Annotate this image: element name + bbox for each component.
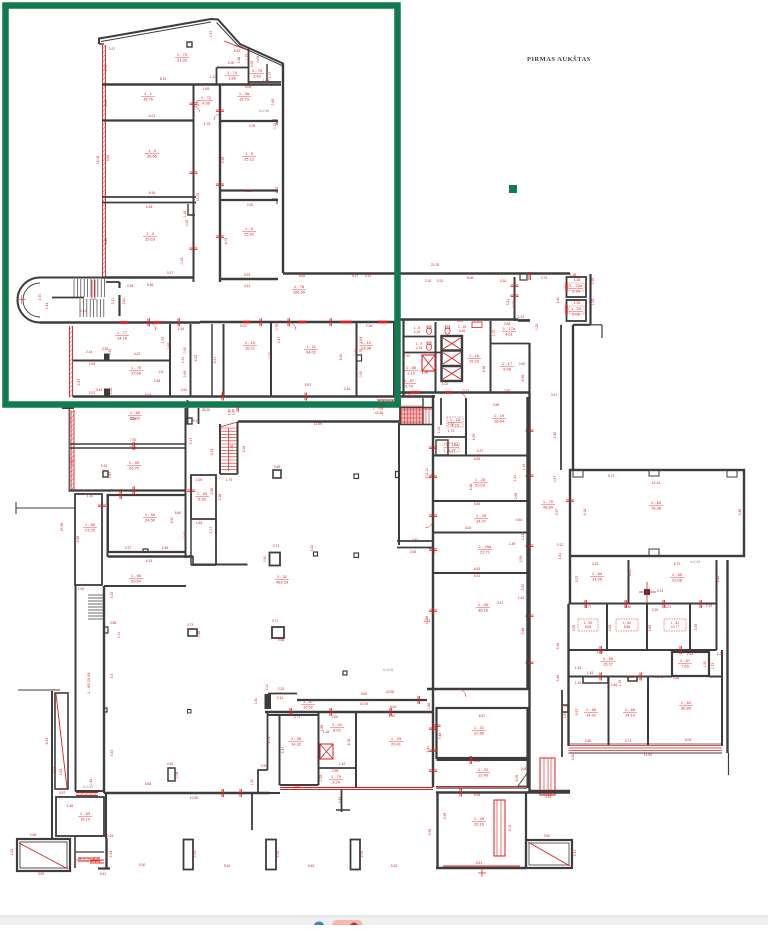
svg-text:0.66: 0.66 xyxy=(278,638,285,642)
svg-text:2.33: 2.33 xyxy=(278,687,285,691)
svg-text:1 - 76a: 1 - 76a xyxy=(373,407,384,411)
svg-text:5.42: 5.42 xyxy=(389,714,396,718)
svg-text:25.12: 25.12 xyxy=(244,156,255,161)
svg-text:1 - 2: 1 - 2 xyxy=(148,148,157,153)
svg-text:3.43: 3.43 xyxy=(338,797,342,804)
svg-text:2.47: 2.47 xyxy=(77,379,81,386)
svg-text:1.48: 1.48 xyxy=(67,804,74,808)
svg-text:3.93: 3.93 xyxy=(244,273,251,277)
svg-text:0.72: 0.72 xyxy=(273,544,280,548)
svg-text:1 - 18a: 1 - 18a xyxy=(446,442,459,447)
svg-text:0.25: 0.25 xyxy=(107,834,114,838)
svg-text:5.06: 5.06 xyxy=(467,276,474,280)
svg-text:1 - 23: 1 - 23 xyxy=(571,306,582,311)
svg-text:2.8: 2.8 xyxy=(159,370,164,374)
svg-text:2.46: 2.46 xyxy=(611,683,618,687)
svg-text:4.03: 4.03 xyxy=(224,238,228,245)
svg-text:11.11: 11.11 xyxy=(425,468,429,476)
svg-text:6.55: 6.55 xyxy=(109,388,113,395)
svg-text:2.73: 2.73 xyxy=(541,276,548,280)
svg-text:1 - 5: 1 - 5 xyxy=(245,151,254,156)
svg-text:0.61: 0.61 xyxy=(100,872,107,876)
svg-text:23.25: 23.25 xyxy=(85,527,96,532)
svg-text:27.66: 27.66 xyxy=(131,370,142,375)
svg-text:2.80: 2.80 xyxy=(625,605,632,609)
svg-text:2.03: 2.03 xyxy=(75,858,82,862)
svg-text:4.28: 4.28 xyxy=(469,484,473,491)
svg-text:98.84: 98.84 xyxy=(543,504,554,509)
svg-text:6.21: 6.21 xyxy=(213,357,217,364)
svg-text:4.05: 4.05 xyxy=(245,85,252,89)
svg-text:2.37: 2.37 xyxy=(125,546,132,550)
svg-text:6.18: 6.18 xyxy=(583,509,587,516)
svg-text:4.56: 4.56 xyxy=(202,100,211,105)
svg-text:4.37: 4.37 xyxy=(477,449,484,453)
svg-text:1.79: 1.79 xyxy=(618,680,622,687)
svg-text:4.18: 4.18 xyxy=(242,446,246,453)
svg-text:9.79: 9.79 xyxy=(405,383,414,388)
svg-text:5.41: 5.41 xyxy=(476,861,483,865)
svg-text:3.29: 3.29 xyxy=(59,769,63,776)
svg-text:78.38: 78.38 xyxy=(651,505,662,510)
svg-text:1.29: 1.29 xyxy=(319,775,323,782)
svg-text:1.79: 1.79 xyxy=(226,478,233,482)
svg-text:3.46: 3.46 xyxy=(459,329,465,333)
svg-text:7.65: 7.65 xyxy=(681,663,690,668)
svg-text:0.15: 0.15 xyxy=(273,123,277,130)
svg-text:h=3.05: h=3.05 xyxy=(383,668,394,672)
svg-text:2.48: 2.48 xyxy=(162,546,169,550)
svg-text:3.01: 3.01 xyxy=(240,324,247,328)
svg-text:0.18: 0.18 xyxy=(127,284,134,288)
svg-text:29.64: 29.64 xyxy=(131,578,142,583)
svg-text:16.76: 16.76 xyxy=(143,96,154,101)
svg-text:0.30: 0.30 xyxy=(268,352,272,359)
svg-text:2.87: 2.87 xyxy=(448,447,457,452)
svg-text:0.27: 0.27 xyxy=(167,271,174,275)
svg-text:2.41: 2.41 xyxy=(573,850,577,857)
svg-text:16.21: 16.21 xyxy=(245,345,256,350)
svg-text:2.59: 2.59 xyxy=(519,556,523,563)
svg-text:1 - 64: 1 - 64 xyxy=(592,571,603,576)
svg-text:5.46: 5.46 xyxy=(556,675,560,682)
svg-text:2.44: 2.44 xyxy=(344,387,351,391)
svg-text:2.65: 2.65 xyxy=(271,99,275,106)
svg-text:3.10: 3.10 xyxy=(405,393,412,397)
svg-text:5.09: 5.09 xyxy=(685,738,692,742)
svg-text:1 - 30: 1 - 30 xyxy=(478,602,489,607)
svg-text:4.50: 4.50 xyxy=(170,517,174,524)
svg-text:1.45: 1.45 xyxy=(587,671,594,675)
svg-text:5.57: 5.57 xyxy=(575,709,579,716)
svg-text:1 - 17: 1 - 17 xyxy=(502,361,513,366)
svg-text:3.37: 3.37 xyxy=(53,767,57,774)
svg-text:4.30: 4.30 xyxy=(339,354,343,361)
svg-text:1 - 22a: 1 - 22a xyxy=(570,283,583,288)
svg-text:6.60: 6.60 xyxy=(175,511,182,515)
svg-text:43.56: 43.56 xyxy=(386,690,395,694)
svg-text:1 - 65: 1 - 65 xyxy=(672,572,683,577)
svg-text:1.33: 1.33 xyxy=(591,299,595,306)
svg-text:1.69: 1.69 xyxy=(196,478,203,482)
svg-text:4.11: 4.11 xyxy=(244,284,250,288)
svg-text:0.58: 0.58 xyxy=(110,621,117,625)
svg-text:463.33: 463.33 xyxy=(276,579,289,584)
svg-text:6.21: 6.21 xyxy=(149,114,156,118)
svg-text:2.33: 2.33 xyxy=(193,851,197,858)
svg-text:43.56: 43.56 xyxy=(424,407,433,411)
svg-text:6.70: 6.70 xyxy=(674,562,681,566)
svg-text:5.46: 5.46 xyxy=(104,238,108,245)
svg-text:8.10: 8.10 xyxy=(160,77,167,81)
svg-text:1.08: 1.08 xyxy=(175,772,179,779)
svg-text:0.12: 0.12 xyxy=(557,543,564,547)
svg-text:1.92: 1.92 xyxy=(87,494,94,498)
svg-text:2.73: 2.73 xyxy=(104,65,108,72)
svg-text:1.99: 1.99 xyxy=(422,371,429,375)
svg-text:1.90: 1.90 xyxy=(78,587,85,591)
svg-text:1.32: 1.32 xyxy=(432,548,436,555)
svg-text:3.17: 3.17 xyxy=(209,527,213,534)
svg-text:14.42: 14.42 xyxy=(586,712,597,717)
svg-text:3.40: 3.40 xyxy=(70,459,74,466)
svg-text:3.92: 3.92 xyxy=(38,872,45,876)
svg-text:3.26: 3.26 xyxy=(457,319,464,323)
svg-text:2.60: 2.60 xyxy=(332,715,339,719)
svg-text:36.89: 36.89 xyxy=(681,705,692,710)
svg-text:1.02: 1.02 xyxy=(437,427,441,434)
svg-text:6.63: 6.63 xyxy=(474,567,481,571)
svg-text:1.38: 1.38 xyxy=(574,278,581,282)
svg-text:2.80: 2.80 xyxy=(585,739,592,743)
svg-text:0.25: 0.25 xyxy=(185,220,189,227)
svg-text:2.55: 2.55 xyxy=(30,833,37,837)
svg-text:2.64: 2.64 xyxy=(504,322,511,326)
svg-text:166.90: 166.90 xyxy=(293,289,306,294)
svg-text:3.42: 3.42 xyxy=(253,73,262,78)
svg-text:9.82: 9.82 xyxy=(361,692,368,696)
svg-text:1 - 78: 1 - 78 xyxy=(131,365,142,370)
svg-text:0.48: 0.48 xyxy=(197,631,201,638)
svg-text:1 - 72: 1 - 72 xyxy=(201,95,212,100)
svg-text:2.81: 2.81 xyxy=(122,298,126,305)
svg-text:1 - 74: 1 - 74 xyxy=(227,70,238,75)
svg-text:4.22: 4.22 xyxy=(134,352,141,356)
svg-text:3.21: 3.21 xyxy=(506,299,510,306)
svg-text:1.75: 1.75 xyxy=(204,122,211,126)
svg-text:10.77: 10.77 xyxy=(671,625,679,629)
svg-text:1.50: 1.50 xyxy=(563,712,567,719)
svg-text:5.92: 5.92 xyxy=(556,643,560,650)
svg-text:5.93: 5.93 xyxy=(428,829,432,836)
svg-text:1 - 11: 1 - 11 xyxy=(306,344,317,349)
svg-text:5.48: 5.48 xyxy=(521,628,525,635)
svg-text:5.41: 5.41 xyxy=(426,746,430,753)
svg-text:22.71: 22.71 xyxy=(480,549,491,554)
svg-text:0.42: 0.42 xyxy=(89,779,93,786)
svg-text:2.77: 2.77 xyxy=(585,605,592,609)
svg-text:2.14: 2.14 xyxy=(706,604,713,608)
svg-text:6.22: 6.22 xyxy=(194,355,198,362)
svg-text:1 - 77: 1 - 77 xyxy=(117,330,128,335)
svg-text:2.69: 2.69 xyxy=(514,493,518,500)
svg-text:2.66: 2.66 xyxy=(504,389,511,393)
svg-text:1.57: 1.57 xyxy=(209,31,213,38)
svg-text:1.18: 1.18 xyxy=(597,650,604,654)
svg-text:5.57: 5.57 xyxy=(555,509,559,516)
svg-text:2.73: 2.73 xyxy=(161,337,165,344)
svg-text:36.16: 36.16 xyxy=(478,607,489,612)
svg-text:0.69: 0.69 xyxy=(274,465,281,469)
svg-text:1 - 16: 1 - 16 xyxy=(469,353,480,358)
svg-text:3.22: 3.22 xyxy=(512,301,516,308)
svg-text:1.42: 1.42 xyxy=(518,596,525,600)
svg-text:3.55: 3.55 xyxy=(694,624,698,631)
svg-text:2.33: 2.33 xyxy=(360,851,364,858)
svg-text:0.33: 0.33 xyxy=(101,464,108,468)
svg-text:2.33: 2.33 xyxy=(276,851,280,858)
svg-text:6.57: 6.57 xyxy=(479,714,486,718)
svg-text:6.89: 6.89 xyxy=(76,536,80,543)
svg-text:1 - 55: 1 - 55 xyxy=(129,460,140,465)
svg-text:1.38: 1.38 xyxy=(570,273,577,277)
svg-text:12.19: 12.19 xyxy=(196,193,200,202)
svg-text:2.69: 2.69 xyxy=(104,100,108,107)
svg-text:15.33: 15.33 xyxy=(469,358,480,363)
svg-text:2.15: 2.15 xyxy=(416,346,422,350)
svg-text:5.68: 5.68 xyxy=(145,782,152,786)
svg-text:1.48: 1.48 xyxy=(230,445,234,452)
svg-text:1.69: 1.69 xyxy=(203,87,210,91)
svg-text:3.32: 3.32 xyxy=(310,545,314,552)
svg-text:24.50: 24.50 xyxy=(145,517,156,522)
svg-text:5.33: 5.33 xyxy=(198,496,207,501)
svg-text:0.31: 0.31 xyxy=(365,274,372,278)
svg-text:1.01: 1.01 xyxy=(117,632,121,639)
svg-text:25.63: 25.63 xyxy=(145,236,156,241)
svg-text:2.16: 2.16 xyxy=(414,330,420,334)
svg-text:0.15: 0.15 xyxy=(180,258,184,265)
svg-text:3.53: 3.53 xyxy=(608,625,612,632)
svg-text:1 - 70: 1 - 70 xyxy=(543,499,554,504)
svg-text:2.61: 2.61 xyxy=(181,388,188,392)
svg-text:15.27: 15.27 xyxy=(603,661,614,666)
svg-text:0.90: 0.90 xyxy=(263,556,267,563)
svg-text:1 - 31: 1 - 31 xyxy=(474,725,485,730)
svg-text:1.72: 1.72 xyxy=(492,330,496,337)
svg-text:3.27: 3.27 xyxy=(575,576,579,583)
svg-text:4.29: 4.29 xyxy=(472,434,476,441)
svg-text:1 - 54: 1 - 54 xyxy=(145,512,156,517)
svg-text:0.73: 0.73 xyxy=(187,623,194,627)
svg-text:1.50: 1.50 xyxy=(250,779,254,786)
svg-text:0.27: 0.27 xyxy=(109,47,116,51)
svg-text:3.10: 3.10 xyxy=(545,795,552,799)
svg-text:0.44: 0.44 xyxy=(96,388,103,392)
svg-text:0.33: 0.33 xyxy=(424,619,431,623)
svg-text:3.16: 3.16 xyxy=(500,279,507,283)
svg-text:0.47: 0.47 xyxy=(497,601,504,605)
svg-text:28.20: 28.20 xyxy=(202,408,211,412)
svg-text:5.30: 5.30 xyxy=(139,863,146,867)
svg-text:5.53: 5.53 xyxy=(110,750,114,757)
svg-text:1.73: 1.73 xyxy=(711,663,715,670)
svg-text:1 - 28: 1 - 28 xyxy=(475,477,486,482)
svg-text:2.64: 2.64 xyxy=(359,337,363,344)
svg-text:0.25: 0.25 xyxy=(535,324,539,331)
svg-text:1.39: 1.39 xyxy=(574,301,581,305)
svg-text:5.48: 5.48 xyxy=(738,509,742,516)
svg-text:2.10: 2.10 xyxy=(404,354,411,358)
svg-text:0.31: 0.31 xyxy=(437,279,444,283)
svg-text:1.91: 1.91 xyxy=(431,511,435,518)
svg-text:12.31: 12.31 xyxy=(652,481,661,485)
svg-text:2.71: 2.71 xyxy=(625,739,632,743)
svg-text:1.44: 1.44 xyxy=(45,303,49,310)
svg-text:2.69: 2.69 xyxy=(183,371,187,378)
svg-text:0.30: 0.30 xyxy=(247,203,254,207)
svg-text:6.95: 6.95 xyxy=(515,775,519,782)
svg-text:7.48: 7.48 xyxy=(438,733,442,740)
svg-text:4.58: 4.58 xyxy=(482,366,486,373)
svg-text:0.71: 0.71 xyxy=(272,619,279,623)
svg-text:1.18: 1.18 xyxy=(323,730,330,734)
svg-text:1.10: 1.10 xyxy=(265,684,269,691)
svg-text:3.21: 3.21 xyxy=(463,389,470,393)
svg-text:2.42: 2.42 xyxy=(183,532,187,539)
svg-text:1.02: 1.02 xyxy=(442,382,449,386)
svg-text:1 - 52: 1 - 52 xyxy=(277,574,288,579)
svg-text:1.31: 1.31 xyxy=(181,357,185,364)
svg-text:1 - 3: 1 - 3 xyxy=(146,231,155,236)
svg-text:3.50: 3.50 xyxy=(544,834,551,838)
svg-text:0.15: 0.15 xyxy=(561,704,568,708)
svg-text:2.71: 2.71 xyxy=(294,715,301,719)
svg-text:1.28: 1.28 xyxy=(717,652,724,656)
svg-text:1 - 3a: 1 - 3a xyxy=(239,91,250,96)
svg-text:3.74: 3.74 xyxy=(210,449,214,456)
svg-text:5.32: 5.32 xyxy=(391,864,398,868)
svg-text:1.15: 1.15 xyxy=(575,681,582,685)
svg-text:3.96: 3.96 xyxy=(245,189,252,193)
svg-text:1.12: 1.12 xyxy=(518,315,525,319)
svg-text:7.90: 7.90 xyxy=(130,446,137,450)
svg-text:2.00: 2.00 xyxy=(228,61,235,65)
svg-text:1 - 60: 1 - 60 xyxy=(131,573,142,578)
svg-text:1.64: 1.64 xyxy=(178,327,185,331)
svg-text:3.20: 3.20 xyxy=(571,754,575,761)
svg-text:0.97: 0.97 xyxy=(59,791,66,795)
svg-text:5.17: 5.17 xyxy=(189,438,193,445)
svg-text:5.36: 5.36 xyxy=(147,283,154,287)
svg-text:1 - 87: 1 - 87 xyxy=(404,378,415,383)
svg-text:16.73: 16.73 xyxy=(239,96,250,101)
svg-text:1.17: 1.17 xyxy=(268,72,272,79)
svg-text:0.56: 0.56 xyxy=(493,403,500,407)
svg-text:h=2.45: h=2.45 xyxy=(690,560,701,564)
svg-text:9.15: 9.15 xyxy=(193,419,200,423)
svg-text:10.09: 10.09 xyxy=(360,702,369,706)
svg-text:0.25: 0.25 xyxy=(652,608,659,612)
svg-text:1.18: 1.18 xyxy=(183,211,187,218)
svg-text:2.10: 2.10 xyxy=(425,279,432,283)
svg-text:1.13: 1.13 xyxy=(521,534,525,541)
svg-text:1 - 79: 1 - 79 xyxy=(331,774,342,779)
svg-text:5.45: 5.45 xyxy=(553,432,557,439)
svg-text:5.66: 5.66 xyxy=(474,793,481,797)
svg-text:7.90: 7.90 xyxy=(130,438,137,442)
svg-text:0.36: 0.36 xyxy=(354,349,358,356)
svg-text:22.86: 22.86 xyxy=(474,730,485,735)
svg-text:1 - 73: 1 - 73 xyxy=(177,52,188,57)
svg-text:2.12: 2.12 xyxy=(277,696,284,700)
svg-text:PIRMAS AUKŠTAS: PIRMAS AUKŠTAS xyxy=(527,55,591,63)
svg-text:1 - 57: 1 - 57 xyxy=(303,699,314,704)
svg-text:0.60: 0.60 xyxy=(519,362,526,366)
svg-text:5.45: 5.45 xyxy=(308,864,315,868)
svg-text:1.42: 1.42 xyxy=(339,762,346,766)
svg-text:1 - 62: 1 - 62 xyxy=(681,700,692,705)
svg-text:12.49: 12.49 xyxy=(478,772,489,777)
svg-text:23.08: 23.08 xyxy=(672,577,683,582)
svg-text:1.89: 1.89 xyxy=(263,79,270,83)
svg-text:1.35: 1.35 xyxy=(628,675,635,679)
svg-text:4.36: 4.36 xyxy=(673,676,680,680)
svg-text:2.56: 2.56 xyxy=(332,769,339,773)
svg-text:14.26: 14.26 xyxy=(592,576,603,581)
svg-text:3.55: 3.55 xyxy=(572,625,576,632)
svg-text:4.08: 4.08 xyxy=(347,739,351,746)
svg-text:6.53: 6.53 xyxy=(474,759,481,763)
svg-text:2.62: 2.62 xyxy=(521,584,525,591)
svg-text:14.19: 14.19 xyxy=(625,712,636,717)
svg-text:8.63: 8.63 xyxy=(585,625,591,629)
svg-text:1 - 63: 1 - 63 xyxy=(80,811,91,816)
svg-text:20.03: 20.03 xyxy=(475,482,486,487)
svg-text:0.79: 0.79 xyxy=(359,349,363,356)
svg-text:3.47: 3.47 xyxy=(551,393,558,397)
svg-text:15.10: 15.10 xyxy=(80,816,91,821)
svg-text:1.10: 1.10 xyxy=(210,75,217,79)
svg-text:0.29: 0.29 xyxy=(249,124,256,128)
svg-text:34.02: 34.02 xyxy=(306,349,317,354)
svg-text:1.50: 1.50 xyxy=(703,661,707,668)
svg-text:27.96: 27.96 xyxy=(60,523,64,532)
svg-text:2.85: 2.85 xyxy=(167,343,171,350)
svg-text:9.08: 9.08 xyxy=(503,366,512,371)
svg-text:1.55: 1.55 xyxy=(591,278,595,285)
svg-text:1.83: 1.83 xyxy=(196,521,203,525)
svg-text:0.66: 0.66 xyxy=(256,56,260,63)
svg-text:1 - 82: 1 - 82 xyxy=(651,500,662,505)
svg-text:1 - 88: 1 - 88 xyxy=(406,365,417,370)
svg-text:32.16: 32.16 xyxy=(474,821,485,826)
svg-text:5.87: 5.87 xyxy=(305,383,312,387)
svg-text:35.65: 35.65 xyxy=(147,153,158,158)
svg-text:2.40: 2.40 xyxy=(412,538,419,542)
svg-text:6.51: 6.51 xyxy=(474,574,481,578)
svg-text:11.89: 11.89 xyxy=(314,422,322,426)
svg-text:14.07: 14.07 xyxy=(476,518,487,523)
svg-text:2.79: 2.79 xyxy=(196,100,200,107)
svg-text:25.62: 25.62 xyxy=(244,231,255,236)
svg-text:1 - 58: 1 - 58 xyxy=(603,656,614,661)
svg-text:5.64: 5.64 xyxy=(294,784,301,788)
svg-text:1 - 76: 1 - 76 xyxy=(294,284,305,289)
svg-text:1.47: 1.47 xyxy=(108,472,112,479)
svg-text:1 - 19: 1 - 19 xyxy=(494,413,505,418)
svg-text:2.70: 2.70 xyxy=(38,294,42,301)
